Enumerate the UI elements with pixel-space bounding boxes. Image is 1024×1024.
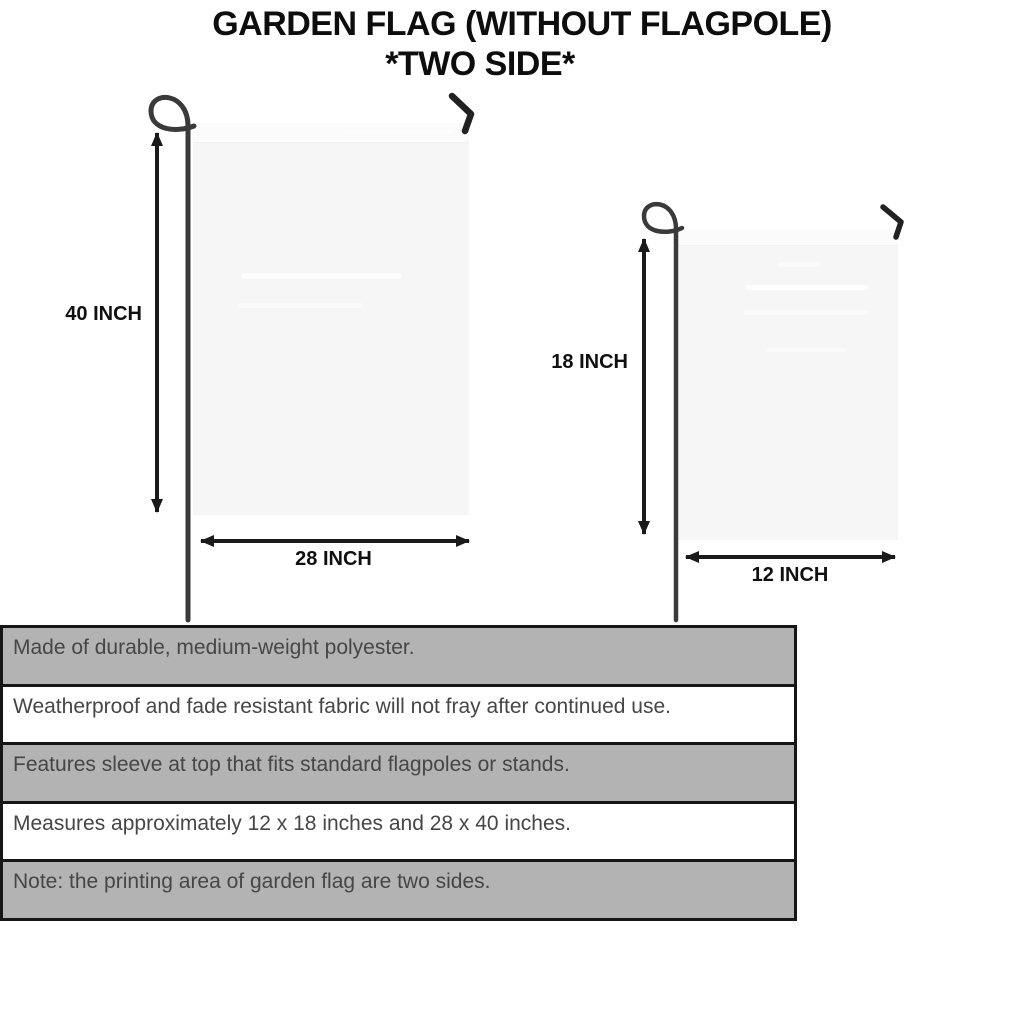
flag-wrinkle (778, 262, 820, 267)
page-title: GARDEN FLAG (WITHOUT FLAGPOLE) (20, 5, 1024, 43)
height-label-small: 18 INCH (506, 351, 628, 373)
garden-flag-small (678, 230, 898, 540)
feature-row: Note: the printing area of garden flag a… (3, 862, 794, 918)
width-label-large: 28 INCH (197, 548, 470, 570)
flag-wrinkle (343, 129, 453, 133)
flag-wrinkle (241, 273, 401, 279)
feature-row: Weatherproof and fade resistant fabric w… (3, 687, 794, 746)
feature-row: Made of durable, medium-weight polyester… (3, 628, 794, 687)
feature-table: Made of durable, medium-weight polyester… (0, 625, 797, 921)
product-info-image: GARDEN FLAG (WITHOUT FLAGPOLE) *TWO SIDE… (0, 0, 1024, 1024)
width-label-small: 12 INCH (684, 564, 896, 586)
flagpole-large (151, 97, 194, 620)
flag-wrinkle (746, 285, 868, 290)
flag-wrinkle (766, 348, 846, 352)
feature-row: Features sleeve at top that fits standar… (3, 745, 794, 804)
flag-sleeve (193, 123, 469, 143)
flag-wrinkle (744, 310, 869, 315)
feature-row: Measures approximately 12 x 18 inches an… (3, 804, 794, 863)
height-label-large: 40 INCH (20, 303, 142, 325)
garden-flag-large (193, 123, 469, 515)
flag-wrinkle (238, 303, 363, 308)
page-subtitle: *TWO SIDE* (0, 45, 960, 83)
flagpole-small (644, 204, 682, 620)
flag-sleeve (678, 230, 898, 246)
